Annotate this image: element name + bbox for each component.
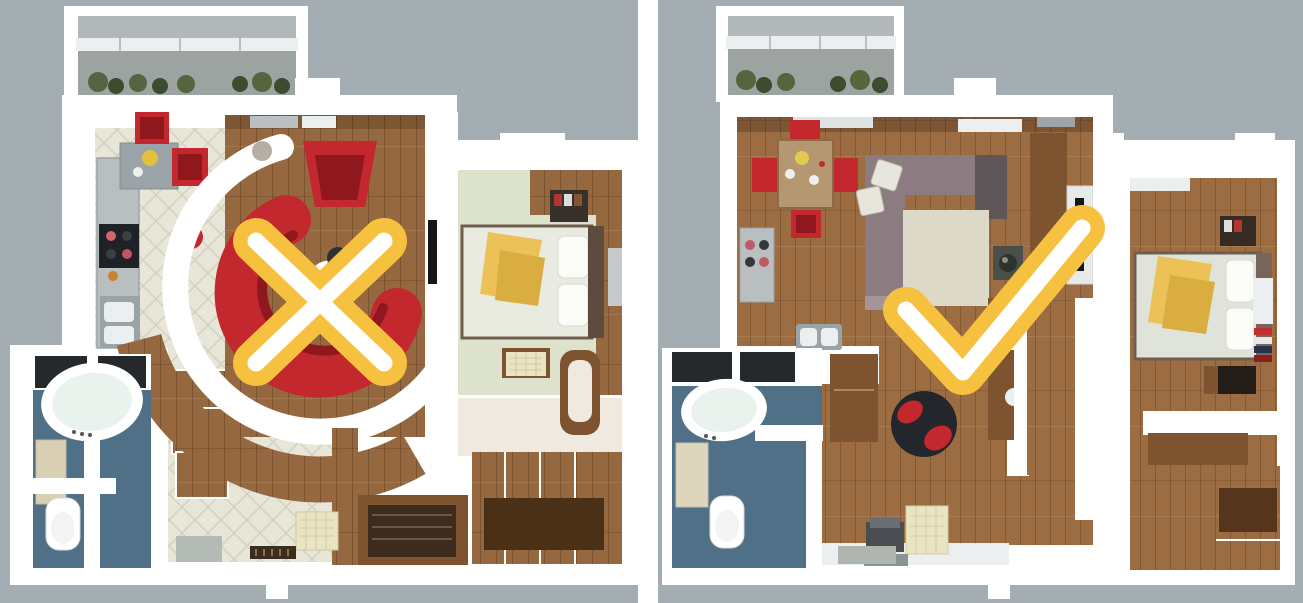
cabinet — [1218, 366, 1256, 394]
window-sill — [250, 116, 298, 128]
balcony — [64, 6, 308, 102]
pillow — [558, 236, 588, 278]
partition — [84, 440, 100, 568]
pillow — [856, 186, 885, 216]
stove — [740, 228, 774, 302]
window-sill — [302, 116, 336, 128]
kitchen-table — [120, 143, 178, 189]
balcony-railing — [76, 38, 298, 51]
jar — [108, 271, 118, 281]
balcony-roof — [728, 16, 894, 36]
desk-top — [1143, 411, 1280, 435]
doormat — [250, 546, 296, 559]
chair — [752, 158, 778, 192]
vent — [1037, 117, 1075, 127]
balcony-roof — [78, 16, 296, 38]
floorplan-right-approved — [658, 0, 1303, 603]
wall-vent — [954, 78, 996, 98]
chair — [832, 158, 858, 192]
nightstand — [1253, 278, 1273, 324]
tv — [428, 220, 437, 284]
pillow — [558, 284, 588, 326]
corridor-floor — [1027, 300, 1075, 475]
side-table — [252, 141, 272, 161]
bathroom — [662, 348, 823, 570]
window-sill — [1130, 178, 1190, 191]
pouf — [906, 506, 948, 554]
cooktop — [99, 224, 139, 268]
window-sill — [958, 119, 1022, 132]
cabinet — [830, 354, 878, 442]
desk — [1148, 433, 1248, 465]
pouf — [296, 512, 338, 550]
pillow — [1226, 260, 1254, 302]
chair — [790, 120, 820, 142]
cabinet — [36, 440, 66, 504]
partition — [806, 425, 822, 570]
partition — [30, 478, 116, 494]
mat — [838, 546, 896, 564]
balcony — [716, 6, 904, 102]
floorplan-left-rejected — [0, 0, 638, 603]
swivel-chair — [891, 391, 957, 457]
window-sill — [608, 248, 622, 306]
wall-vent — [1235, 133, 1275, 155]
panel-divider — [638, 0, 658, 603]
wall-vent — [295, 78, 340, 100]
balcony-railing — [726, 36, 896, 49]
door-bump — [266, 583, 288, 599]
balcony-floor — [728, 49, 894, 95]
pillow — [1226, 308, 1254, 350]
bathroom — [30, 354, 151, 568]
washer — [676, 443, 708, 507]
door-bump — [988, 583, 1010, 599]
floorplan-comparison — [0, 0, 1303, 603]
wall-vent — [500, 133, 565, 159]
headboard — [588, 226, 604, 338]
mat — [176, 536, 222, 562]
